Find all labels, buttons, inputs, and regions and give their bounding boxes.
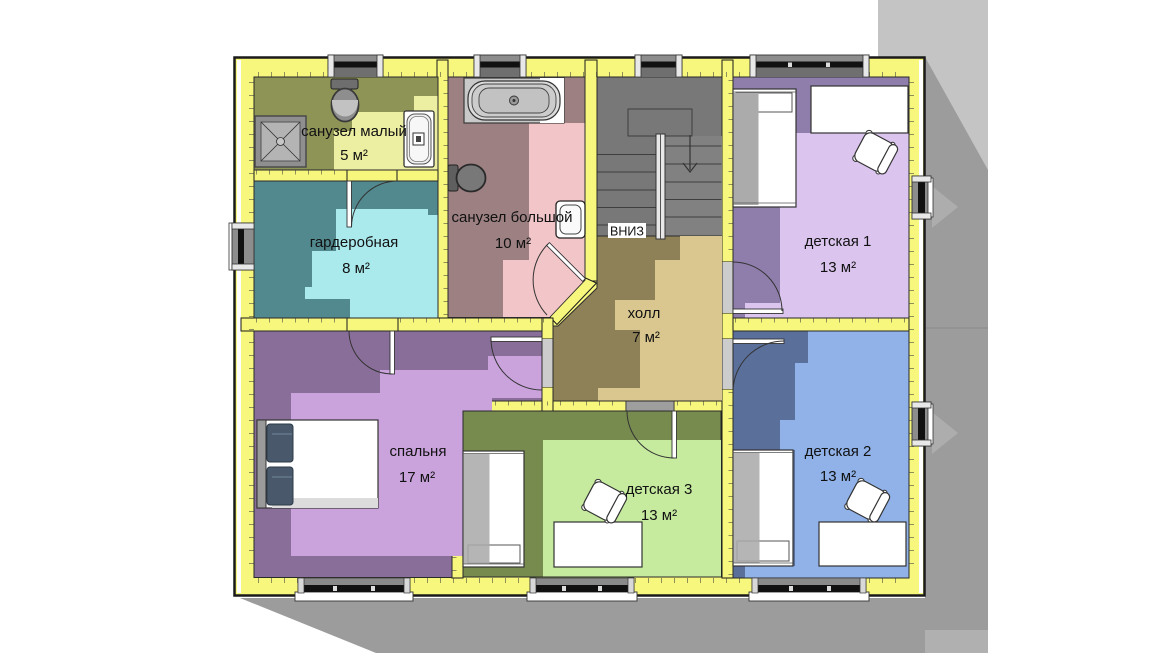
svg-text:санузел большой: санузел большой [451, 209, 572, 226]
svg-text:13 м²: 13 м² [820, 468, 856, 485]
svg-text:13 м²: 13 м² [820, 259, 856, 276]
svg-text:спальня: спальня [390, 443, 447, 460]
svg-text:гардеробная: гардеробная [310, 234, 399, 251]
svg-text:ВНИЗ: ВНИЗ [610, 225, 644, 239]
svg-text:8 м²: 8 м² [342, 260, 370, 277]
svg-text:10 м²: 10 м² [495, 235, 531, 252]
svg-text:17 м²: 17 м² [399, 469, 435, 486]
svg-text:13 м²: 13 м² [641, 507, 677, 524]
svg-text:холл: холл [628, 305, 661, 322]
svg-text:7 м²: 7 м² [632, 329, 660, 346]
svg-text:санузел малый: санузел малый [301, 123, 407, 140]
svg-text:5 м²: 5 м² [340, 147, 368, 164]
svg-text:детская 3: детская 3 [626, 481, 693, 498]
svg-text:детская 1: детская 1 [805, 233, 872, 250]
svg-text:детская 2: детская 2 [805, 443, 872, 460]
